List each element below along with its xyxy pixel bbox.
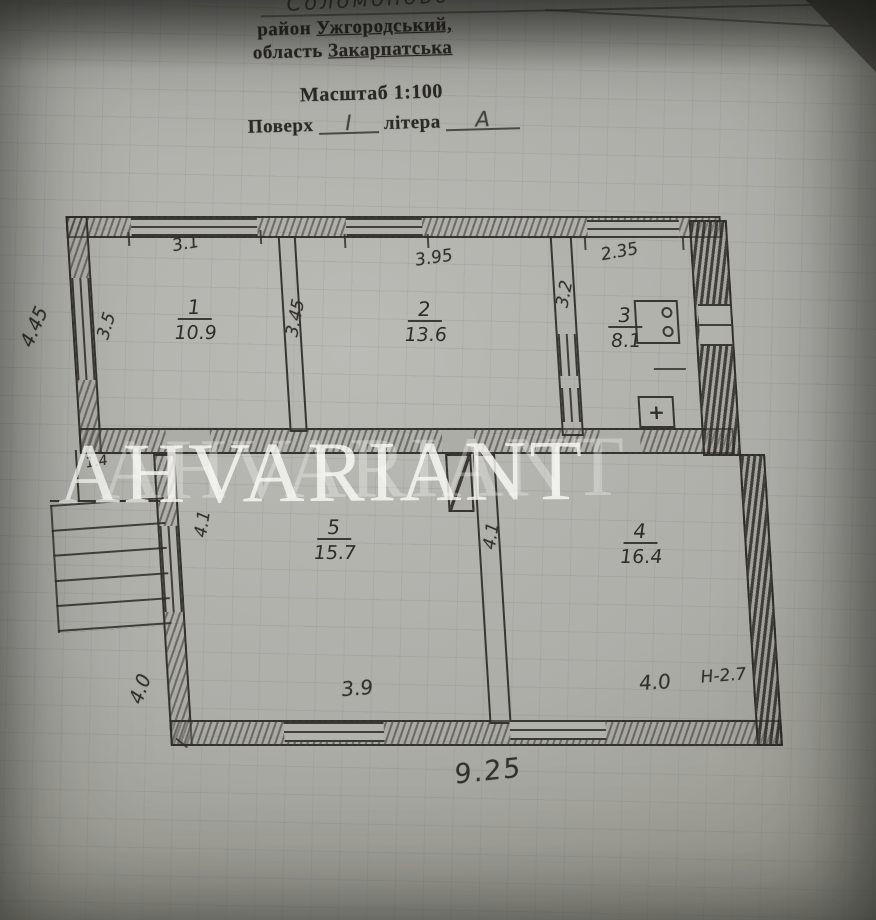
room-area: 15.7 bbox=[296, 542, 373, 564]
page-corner-shadow bbox=[790, 0, 876, 72]
room-area: 13.6 bbox=[389, 324, 462, 346]
stove-burner-icon bbox=[662, 326, 674, 337]
scale-line: Масштаб 1:100 bbox=[300, 80, 443, 107]
vent-room2-room3 bbox=[558, 334, 579, 376]
dim-outer-lower-left: 4.0 bbox=[125, 671, 156, 707]
room-number: 4 bbox=[622, 520, 658, 544]
letter-label: літера bbox=[384, 111, 441, 134]
document-header: Соломоново район Ужгородський, область З… bbox=[0, 0, 874, 7]
region-line: область Закарпатська bbox=[253, 37, 453, 65]
room-label-4: 4 16.4 bbox=[601, 520, 680, 568]
room-label-5: 5 15.7 bbox=[295, 516, 374, 564]
watermark: AHVARIANT bbox=[58, 418, 839, 523]
scanned-floorplan-page: Соломоново район Ужгородський, область З… bbox=[0, 0, 876, 920]
window-room2-top bbox=[346, 218, 423, 236]
dim-height-note: Н-2.7 bbox=[699, 664, 747, 687]
dim-total-width: 9.25 bbox=[452, 753, 524, 791]
dim-room3-top: 2.35 bbox=[599, 239, 641, 265]
room-label-1: 1 10.9 bbox=[157, 296, 232, 344]
dim-tick bbox=[682, 236, 685, 250]
room-label-3: 3 8.1 bbox=[592, 304, 659, 352]
dim-room5-bottom: 3.9 bbox=[340, 675, 375, 701]
room-area: 8.1 bbox=[593, 330, 658, 352]
room-number: 1 bbox=[176, 296, 212, 320]
window-room5-bottom bbox=[283, 722, 384, 742]
dim-tick bbox=[654, 368, 686, 370]
district-value: Ужгородський, bbox=[316, 14, 452, 39]
floor-value: І bbox=[318, 113, 379, 135]
region-value: Закарпатська bbox=[328, 37, 453, 61]
floor-label: Поверх bbox=[248, 115, 314, 138]
wall-lower-bottom bbox=[169, 720, 783, 746]
dim-room1-top: 3.1 bbox=[170, 232, 201, 256]
dim-wall-5-4: 4.1 bbox=[480, 521, 504, 552]
window-room3-top bbox=[587, 220, 680, 238]
region-label: область bbox=[253, 41, 324, 64]
dim-outer-left: 4.45 bbox=[16, 303, 53, 351]
floor-letter-line: Поверх І літера А bbox=[248, 109, 521, 139]
window-room4-bottom bbox=[509, 720, 606, 740]
dim-room4-bottom: 4.0 bbox=[638, 669, 672, 695]
room-number: 2 bbox=[406, 298, 442, 322]
room-label-2: 2 13.6 bbox=[388, 298, 463, 346]
district-label: район bbox=[257, 18, 312, 40]
stove-burner-icon bbox=[661, 307, 673, 318]
room-number: 3 bbox=[606, 304, 642, 328]
room-area: 16.4 bbox=[603, 546, 680, 568]
window-room3-right bbox=[698, 304, 733, 346]
letter-value: А bbox=[446, 109, 521, 131]
room-area: 10.9 bbox=[159, 322, 232, 344]
vent2-room2-room3 bbox=[561, 388, 581, 422]
dim-room2-top: 3.95 bbox=[413, 245, 454, 270]
dim-room1-left: 3.5 bbox=[93, 310, 120, 342]
dim-tick bbox=[584, 236, 587, 250]
